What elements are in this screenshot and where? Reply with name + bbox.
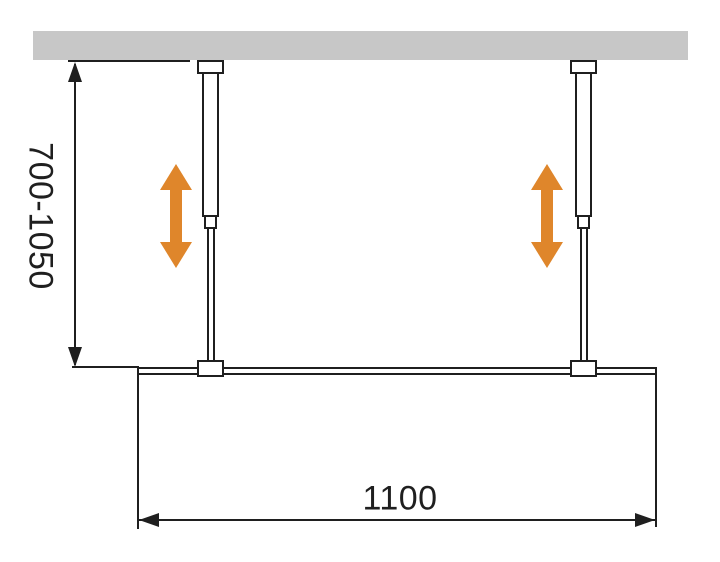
installation-diagram: 700-1050 1100 [0, 0, 720, 562]
arrow-head-up [531, 164, 563, 190]
ceiling-bracket [197, 60, 224, 74]
glass-clamp [570, 360, 597, 377]
rod-collar [577, 215, 590, 229]
glass-clamp [197, 360, 224, 377]
arrow-shaft [541, 188, 553, 244]
dimension-arrow-down-icon [68, 347, 82, 367]
adjust-arrow-left-icon [160, 164, 192, 268]
arrow-head-down [160, 242, 192, 268]
arrow-shaft [170, 188, 182, 244]
glass-panel-right-edge [655, 367, 657, 527]
rod-outer-tube [202, 72, 219, 217]
panel-extension-line [72, 366, 139, 368]
support-rod-right [570, 60, 597, 377]
ceiling-bar [33, 31, 688, 60]
width-label: 1100 [362, 480, 437, 519]
rod-collar [204, 215, 217, 229]
arrow-head-up [160, 164, 192, 190]
support-rod-left [197, 60, 224, 377]
rod-outer-tube [575, 72, 592, 217]
dimension-arrow-up-icon [68, 62, 82, 82]
rod-inner-shaft [207, 227, 215, 363]
arrow-head-down [531, 242, 563, 268]
glass-panel-left-edge [137, 367, 139, 529]
vertical-dimension-line [74, 64, 76, 365]
horizontal-dimension-line [139, 519, 655, 521]
ceiling-extension-line [68, 60, 190, 62]
dimension-arrow-left-icon [139, 513, 159, 527]
rod-inner-shaft [580, 227, 588, 363]
dimension-arrow-right-icon [635, 513, 655, 527]
adjust-arrow-right-icon [531, 164, 563, 268]
ceiling-bracket [570, 60, 597, 74]
height-range-label: 700-1050 [21, 142, 60, 290]
